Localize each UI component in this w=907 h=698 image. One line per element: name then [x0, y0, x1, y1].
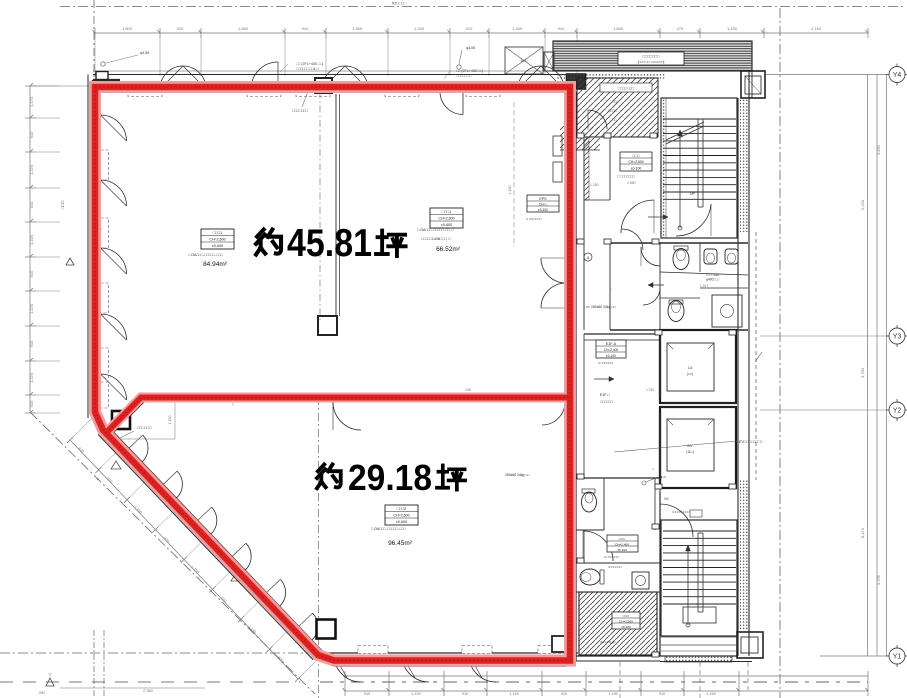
svg-text:1,220: 1,220: [29, 234, 34, 245]
svg-text:96.45m²: 96.45m²: [388, 540, 413, 547]
svg-text:1,800: 1,800: [122, 26, 133, 31]
svg-text:□ □□□□□□: □ □□□□□□: [604, 555, 619, 559]
svg-text:□□□2: □□□2: [397, 506, 407, 511]
svg-text:□□□□ □□□: □□□□ □□□: [618, 87, 635, 91]
svg-text:±0-100: ±0-100: [538, 208, 548, 212]
svg-text:□□□: □□□: [60, 201, 65, 209]
svg-text:□□□1: □□□1: [442, 209, 452, 214]
svg-text:E1F-□: E1F-□: [600, 393, 611, 397]
svg-text:□□□: □□□: [623, 614, 629, 618]
svg-text:E1F-A: E1F-A: [606, 342, 617, 346]
svg-text:EPS: EPS: [539, 197, 547, 201]
svg-text:910: 910: [466, 26, 473, 31]
svg-text:CH=2,400: CH=2,400: [615, 543, 629, 547]
svg-text:1,317: 1,317: [700, 284, 708, 288]
svg-text:1,250: 1,250: [590, 183, 599, 187]
svg-text:29.18: 29.18: [348, 457, 432, 498]
svg-text:1,840: 1,840: [613, 26, 624, 31]
svg-text:2,140: 2,140: [811, 26, 822, 31]
svg-text:910: 910: [558, 26, 565, 31]
svg-text:1,750: 1,750: [646, 388, 654, 392]
svg-text:1,450: 1,450: [508, 186, 512, 195]
svg-text:910: 910: [29, 340, 34, 347]
svg-text:(□□□ □□ □□□□□□): (□□□ □□ □□□□□□): [638, 60, 665, 64]
svg-text:□□□□350: □□□□350: [706, 273, 719, 277]
svg-text:1,150: 1,150: [411, 692, 421, 696]
svg-text:EV□□□□□□□□: EV□□□□□□□□: [739, 440, 763, 444]
svg-text:3,780: 3,780: [860, 367, 865, 378]
svg-text:1,155: 1,155: [509, 692, 519, 696]
svg-text:1,860: 1,860: [238, 26, 249, 31]
svg-text:910: 910: [364, 692, 370, 696]
svg-text:□□□□□□□□□: □□□□□□□□□: [672, 510, 689, 514]
svg-text:φ400□□□: φ400□□□: [706, 278, 719, 282]
svg-text:φ□□: φ□□: [660, 475, 666, 479]
svg-text:±0-100: ±0-100: [606, 354, 616, 358]
svg-text:□ □□□□□□: □ □□□□□□: [598, 361, 613, 365]
svg-text:150x60 24kg □□: 150x60 24kg □□: [505, 473, 529, 477]
svg-text:5,705: 5,705: [877, 575, 881, 585]
svg-text:±0-600: ±0-600: [212, 244, 223, 248]
svg-text:□□□□□□□□4-□: □□□□□□□□4-□: [296, 67, 320, 71]
svg-text:#2□□□□: #2□□□□: [392, 1, 407, 6]
svg-text:□□□: □□□: [619, 537, 625, 541]
svg-text:1,345: 1,345: [414, 26, 425, 31]
svg-text:A: A: [587, 255, 590, 260]
svg-text:1,150: 1,150: [608, 692, 618, 696]
svg-text:□□□□□□: □□□□□□: [600, 400, 614, 404]
svg-text:1,430: 1,430: [727, 26, 738, 31]
svg-text:2,360: 2,360: [143, 688, 154, 693]
svg-text:CH=2,500: CH=2,500: [628, 160, 643, 164]
svg-text:□□□□□(□)□: □□□□□(□)□: [600, 640, 616, 644]
svg-text:□ OA□□□-□□□□□-□□□: □ OA□□□-□□□□□-□□□: [188, 253, 223, 257]
svg-text:14: 14: [688, 365, 693, 370]
svg-text:1,150: 1,150: [706, 692, 716, 696]
svg-text:5,290: 5,290: [860, 199, 865, 210]
svg-text:Y3: Y3: [893, 334, 902, 341]
svg-text:φ105: φ105: [466, 45, 476, 50]
svg-text:1,150: 1,150: [168, 416, 172, 425]
svg-text:66.52m²: 66.52m²: [436, 246, 461, 253]
svg-text:□ □□□□□□□: □ □□□□□□□: [617, 175, 636, 179]
svg-text:CH=2,600: CH=2,600: [209, 238, 225, 242]
svg-text:910: 910: [302, 26, 309, 31]
svg-text:□□□□□□□: □□□□□□□: [643, 54, 660, 59]
svg-text:(11□): (11□): [686, 450, 694, 454]
svg-text:CH=2,600: CH=2,600: [393, 514, 409, 518]
svg-text:1,680: 1,680: [627, 181, 636, 185]
svg-text:84.94m²: 84.94m²: [203, 261, 228, 268]
svg-text:910: 910: [659, 692, 665, 696]
svg-text:UP: UP: [690, 192, 696, 196]
svg-text:□ OA□□□-□□□□□-□□□: □ OA□□□-□□□□□-□□□: [371, 527, 406, 531]
svg-text:1,160: 1,160: [512, 26, 523, 31]
svg-text:±0-200: ±0-200: [621, 625, 631, 629]
svg-text:□ □□□□□□: □ □□□□□□: [526, 217, 541, 221]
svg-text:CH=2,400: CH=2,400: [604, 348, 619, 352]
svg-text:□: □: [97, 477, 99, 481]
svg-text:952: 952: [39, 691, 45, 695]
svg-text:□□□□□□□: □□□□□□□: [292, 109, 309, 113]
svg-text:Y4: Y4: [893, 72, 902, 79]
svg-text:CH=□: CH=□: [539, 203, 547, 207]
svg-text:□: □: [652, 467, 654, 471]
svg-text:□□□□: □□□□: [608, 109, 618, 113]
svg-text:1,220: 1,220: [29, 372, 34, 383]
svg-text:□□□: □□□: [633, 154, 641, 158]
svg-text:910: 910: [29, 201, 34, 208]
svg-text:910: 910: [29, 270, 34, 277]
svg-text:□□□1: □□□1: [213, 230, 223, 235]
svg-text:(□□): (□□): [687, 372, 693, 376]
svg-text:CH=2,500: CH=2,500: [619, 620, 633, 624]
svg-text:CH=2,600: CH=2,600: [438, 217, 454, 221]
svg-text:1,7: 1,7: [741, 517, 746, 521]
svg-text:850: 850: [664, 497, 670, 501]
svg-text:±0-600: ±0-600: [396, 520, 407, 524]
svg-text:910: 910: [561, 692, 567, 696]
svg-text:910: 910: [29, 400, 34, 407]
svg-text:245: 245: [465, 388, 471, 392]
svg-text:φ105: φ105: [140, 50, 150, 55]
svg-text:Y1: Y1: [893, 654, 902, 661]
svg-text:1,170: 1,170: [29, 96, 34, 107]
svg-text:1,365: 1,365: [352, 26, 363, 31]
svg-text:910: 910: [462, 692, 468, 696]
svg-text:□□ 150x60 24kg □□: □□ 150x60 24kg □□: [586, 305, 616, 309]
svg-text:5,290: 5,290: [877, 145, 881, 155]
svg-text:□ OA□□□-□□□□□-□□, □: □ OA□□□-□□□□□-□□, □: [417, 228, 454, 232]
svg-text:□□□: □□□: [612, 100, 619, 104]
svg-text:□□□□□1436□□□, □: □□□□□1436□□□, □: [421, 237, 451, 241]
svg-text:±0-100: ±0-100: [631, 167, 642, 171]
svg-text:□□ (2FL+450 □□): □□ (2FL+450 □□): [296, 62, 323, 66]
svg-text:1,220: 1,220: [29, 164, 34, 175]
svg-text:8,470: 8,470: [860, 527, 865, 538]
svg-text:□: □: [610, 287, 612, 291]
svg-text:910: 910: [29, 131, 34, 138]
svg-text:45.81: 45.81: [287, 222, 372, 265]
svg-text:□: □: [232, 403, 234, 407]
svg-text:□□□□□□: □□□□□□: [137, 425, 152, 430]
svg-text:Y2: Y2: [893, 408, 902, 415]
svg-text:□□□□□□□: □□□□□□□: [608, 565, 622, 569]
svg-text:±0-100: ±0-100: [617, 548, 627, 552]
svg-text:470: 470: [677, 26, 684, 31]
svg-text:910: 910: [177, 26, 184, 31]
svg-text:1,220: 1,220: [29, 303, 34, 314]
svg-text:1t□□: 1t□□: [520, 59, 528, 63]
svg-text:±0-600: ±0-600: [441, 223, 452, 227]
